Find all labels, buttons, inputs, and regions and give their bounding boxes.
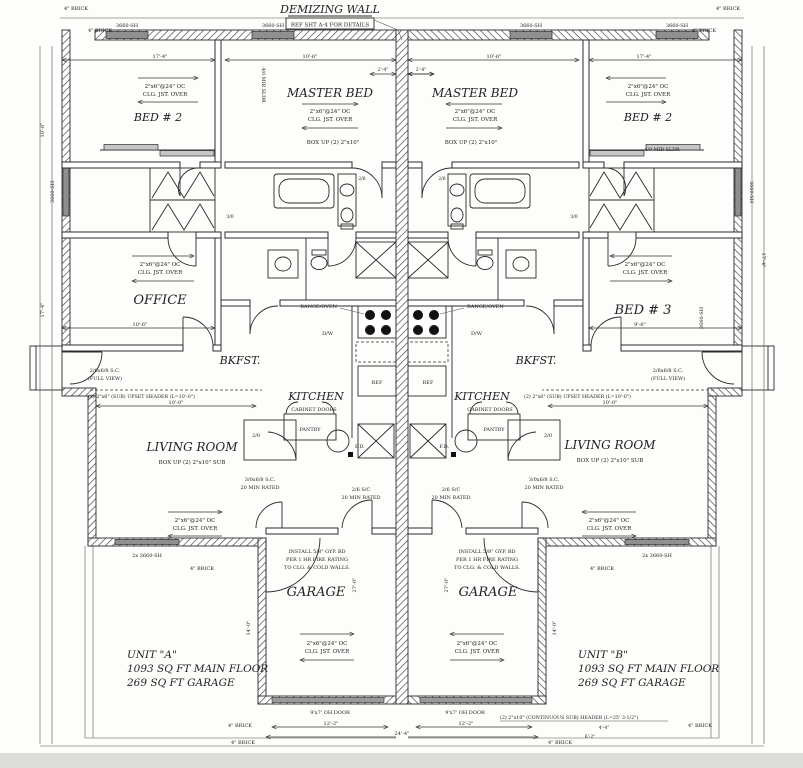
room-label-bed2-a: BED # 2	[133, 111, 182, 124]
brick-note: 4" BRICK	[688, 723, 712, 729]
dim-label: 12'-2"	[324, 721, 339, 727]
door-note-fullview: 2/6x6/8 S.C.	[90, 368, 121, 374]
rated-door-note: 2/6 S/C	[442, 487, 461, 493]
rated-door-note: 3/0x6/8 S.C.	[245, 477, 276, 483]
rated-door-note: 20 MIN RATED	[341, 495, 380, 501]
window-label: 2x 3660-SH	[132, 553, 162, 559]
rated-door-note: 2/6 S/C	[352, 487, 371, 493]
continuous-header-note: (2) 2"x10" (CONTINUOUS SUB) HEADER (L=25…	[500, 714, 638, 721]
fridge-label: REF	[372, 380, 383, 386]
dim-2-4-left: 2'-4"	[378, 67, 389, 73]
room-label-bkfst-b: BKFST.	[515, 354, 557, 367]
range-oven-note: RANGE/OVEN	[467, 304, 504, 310]
unit-a-garage-area: 269 SQ FT GARAGE	[126, 677, 235, 689]
dim-label: 17'-4"	[637, 54, 652, 60]
demising-wall	[396, 30, 408, 704]
fire-rating-note: INSTALL 5/8" GYP. BD	[288, 549, 345, 555]
clg-joist-note: CLG. JST. OVER	[305, 649, 350, 655]
upset-header-note: (2) 2"x6" (SUB) UPSET HEADER (L=10'-0")	[524, 393, 631, 400]
room-label-garage-b: GARAGE	[459, 585, 518, 600]
brick-note: 4" BRICK	[228, 723, 252, 729]
clg-joist-note: CLG. JST. OVER	[455, 649, 500, 655]
clg-joist-note: CLG. JST. OVER	[173, 526, 218, 532]
unit-b-name: UNIT "B"	[578, 649, 628, 661]
clg-joist-note: 2"x6"@24" OC	[145, 83, 186, 90]
dim-label: 9'-6"	[634, 322, 646, 328]
clg-joist-note: 2"x6"@24" OC	[628, 83, 669, 90]
door-size-label: 2/6	[358, 176, 365, 182]
pantry-label: PANTRY	[299, 427, 321, 433]
rated-door-note: 20 MIN RATED	[240, 485, 279, 491]
dim-label: 14'-0"	[552, 621, 558, 636]
fire-rating-note: INSTALL 5/8" GYP. BD	[458, 549, 515, 555]
scan-edge	[0, 753, 803, 768]
clg-joist-note: 2"x6"@24" OC	[457, 640, 498, 647]
door-size-label: 2/0	[544, 433, 552, 439]
range-oven-note: RANGE/OVEN	[300, 304, 337, 310]
room-label-bed2-b: BED # 2	[623, 111, 672, 124]
dishwasher-note: D/W	[322, 331, 334, 337]
window-label: 3660-SH	[699, 306, 705, 329]
window-label: 3660-SH	[666, 23, 689, 29]
door-note-fullview: (FULL VIEW)	[88, 375, 122, 382]
box-up-sub-note: BOX UP (2) 2"x10" SUB	[577, 457, 644, 464]
clg-joist-note: CLG. JST. OVER	[308, 117, 353, 123]
room-label-living-a: LIVING ROOM	[145, 440, 238, 454]
mirror-slider-note: 4/0 MIR SLDR	[644, 147, 680, 153]
unit-a-floor-area: 1093 SQ FT MAIN FLOOR	[127, 663, 268, 675]
fire-rating-note: TO CLG. & COLD WALLS.	[454, 565, 520, 571]
rated-door-note: 20 MIN RATED	[431, 495, 470, 501]
door-size-label: 3/0	[570, 214, 577, 220]
dim-label: 10'-6"	[303, 54, 318, 60]
demising-wall-title: DEMIZING WALL	[279, 3, 380, 16]
window-label: 3660-SH	[520, 23, 543, 29]
clg-joist-note: CLG. JST. OVER	[623, 270, 668, 276]
dim-label: 10'-6"	[40, 123, 46, 138]
dim-label: 10'-6"	[133, 322, 148, 328]
rated-door-note: 3/0x6/8 S.C.	[529, 477, 560, 483]
dim-label: 27'-0"	[444, 578, 450, 593]
clg-joist-note: 2"x6"@24" OC	[589, 517, 630, 524]
window-label: 3660-SH	[262, 23, 285, 29]
window-label: 2x 3660-SH	[642, 553, 672, 559]
room-label-living-b: LIVING ROOM	[563, 438, 656, 452]
pantry-label: PANTRY	[483, 427, 505, 433]
room-label-master-a: MASTER BED	[286, 86, 373, 100]
rated-door-note: 20 MIN RATED	[524, 485, 563, 491]
dim-label: 10'-0"	[603, 400, 618, 406]
brick-note: 4" BRICK	[88, 28, 112, 34]
clg-joist-note: 2"x6"@24" OC	[455, 108, 496, 115]
mirror-slider-note: 4/0 MIR SLDR	[260, 67, 266, 103]
dim-label: 4'-4"	[599, 725, 610, 731]
fire-rating-note: PER 1 HR FIRE RATING	[286, 557, 348, 563]
dim-label: 6'-2"	[585, 734, 596, 740]
dim-label: 10'-0"	[169, 400, 184, 406]
unit-b-floor-area: 1093 SQ FT MAIN FLOOR	[578, 663, 719, 675]
brick-note: 4" BRICK	[64, 6, 88, 12]
room-label-bed3: BED # 3	[614, 303, 672, 318]
unit-a-name: UNIT "A"	[127, 649, 177, 661]
room-label-master-b: MASTER BED	[431, 86, 518, 100]
clg-joist-note: CLG. JST. OVER	[453, 117, 498, 123]
room-label-kitchen-b: KITCHEN	[453, 390, 510, 403]
box-up-note: BOX UP (2) 2"x10"	[307, 139, 360, 146]
clg-joist-note: CLG. JST. OVER	[587, 526, 632, 532]
dishwasher-note: D/W	[471, 331, 483, 337]
clg-joist-note: CLG. JST. OVER	[626, 92, 671, 98]
cabinet-doors-note: CABINET DOORS	[467, 407, 513, 413]
dim-label: 17'-4"	[760, 253, 766, 268]
brick-note: 4" BRICK	[190, 566, 214, 572]
upset-header-note: (2) 2"x6" (SUB) UPSET HEADER (L=10'-0")	[88, 393, 195, 400]
dim-2-4-right: 2'-4"	[416, 67, 427, 73]
fire-rating-note: TO CLG. & COLD WALLS.	[284, 565, 350, 571]
oh-door-note-a: 9'x7' OH DOOR	[310, 710, 350, 716]
brick-note: 4" BRICK	[590, 566, 614, 572]
oh-door-note-b: 9'x7' OH DOOR	[445, 710, 485, 716]
fire-rating-note: PER 1 HR FIRE RATING	[456, 557, 518, 563]
fridge-label: REF	[423, 380, 434, 386]
door-note-fullview: (FULL VIEW)	[651, 375, 685, 382]
door-note-fullview: 2/6x6/8 S.C.	[653, 368, 684, 374]
dim-label: 10'-6"	[487, 54, 502, 60]
window-label: 3660-SH	[748, 181, 754, 204]
clg-joist-note: 2"x6"@24" OC	[307, 640, 348, 647]
dim-label: 12'-2"	[459, 721, 474, 727]
clg-joist-note: 2"x6"@24" OC	[140, 261, 181, 268]
demising-wall-ref: REF SHT A-4 FOR DETAILS	[291, 23, 370, 29]
unit-b-garage-area: 269 SQ FT GARAGE	[577, 677, 686, 689]
dim-label: 17'-4"	[153, 54, 168, 60]
cabinet-doors-note: CABINET DOORS	[291, 407, 337, 413]
clg-joist-note: 2"x6"@24" OC	[310, 108, 351, 115]
door-size-label: 3/0	[226, 214, 233, 220]
brick-note: 4" BRICK	[231, 740, 255, 746]
room-label-office: OFFICE	[133, 293, 187, 308]
dim-label: 27'-0"	[352, 578, 358, 593]
clg-joist-note: CLG. JST. OVER	[143, 92, 188, 98]
clg-joist-note: 2"x6"@24" OC	[175, 517, 216, 524]
floor-plan-drawing: DEMIZING WALL REF SHT A-4 FOR DETAILS 2'…	[0, 0, 803, 768]
door-size-label: 2/6	[438, 176, 445, 182]
blueprint-page: DEMIZING WALL REF SHT A-4 FOR DETAILS 2'…	[0, 0, 803, 768]
brick-note: 4" BRICK	[716, 6, 740, 12]
room-label-garage-a: GARAGE	[287, 585, 346, 600]
clg-joist-note: 2"x6"@24" OC	[625, 261, 666, 268]
dim-label: 14'-0"	[246, 621, 252, 636]
clg-joist-note: CLG. JST. OVER	[138, 270, 183, 276]
window-label: 3660-SH	[116, 23, 139, 29]
brick-note: 4" BRICK	[692, 28, 716, 34]
room-label-bkfst-a: BKFST.	[219, 354, 261, 367]
box-up-note: BOX UP (2) 2"x10"	[445, 139, 498, 146]
door-size-label: 2/0	[252, 433, 260, 439]
window-label: 3660-SH	[50, 180, 56, 203]
room-label-kitchen-a: KITCHEN	[287, 390, 344, 403]
brick-note: 4" BRICK	[548, 740, 572, 746]
dim-label: 24'-4"	[395, 731, 410, 737]
floor-drain-label: F.D.	[439, 444, 449, 450]
box-up-sub-note: BOX UP (2) 2"x10" SUB	[159, 459, 226, 466]
dim-label: 17'-4"	[40, 303, 46, 318]
floor-drain-label: F.D.	[355, 444, 365, 450]
